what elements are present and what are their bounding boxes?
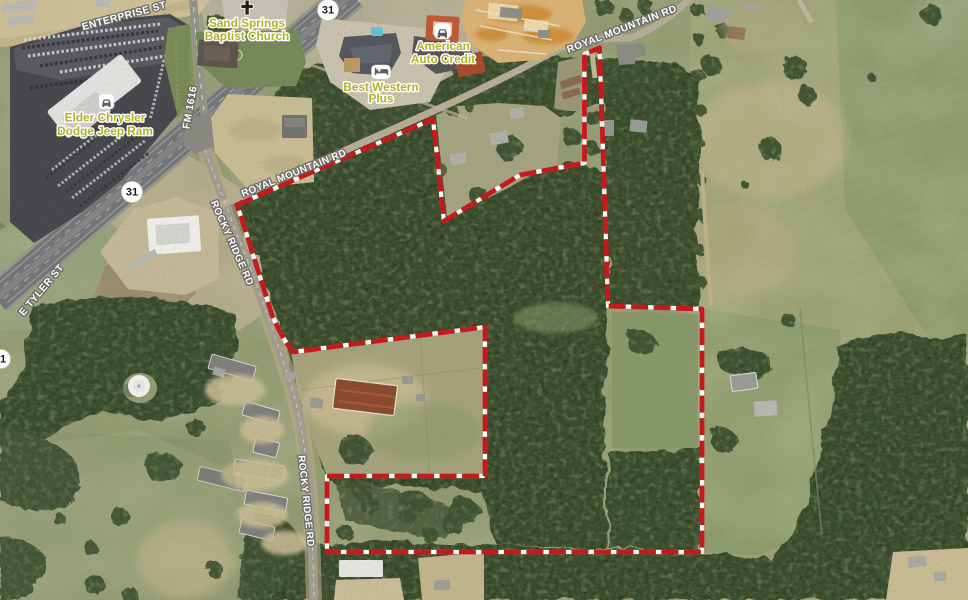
svg-text:Plus: Plus <box>369 92 394 106</box>
svg-text:Auto Credit: Auto Credit <box>411 52 475 66</box>
svg-text:Elder Chrysler: Elder Chrysler <box>65 111 146 125</box>
svg-text:31: 31 <box>322 5 334 17</box>
svg-text:Sand Springs: Sand Springs <box>209 16 285 30</box>
svg-text:1: 1 <box>0 354 6 366</box>
svg-text:American: American <box>416 39 470 53</box>
svg-text:Baptist Church: Baptist Church <box>205 29 290 43</box>
svg-text:31: 31 <box>126 187 138 199</box>
svg-text:Dodge Jeep Ram: Dodge Jeep Ram <box>57 124 153 138</box>
